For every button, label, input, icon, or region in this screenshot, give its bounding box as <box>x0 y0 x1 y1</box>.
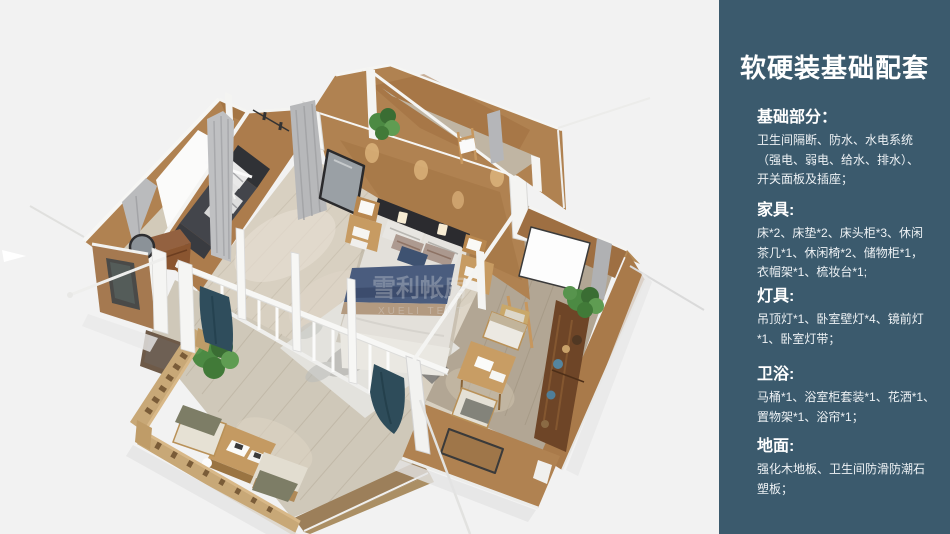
svg-text:雪利帐房: 雪利帐房 <box>372 274 468 302</box>
svg-text:XUELI TENT: XUELI TENT <box>378 306 466 317</box>
